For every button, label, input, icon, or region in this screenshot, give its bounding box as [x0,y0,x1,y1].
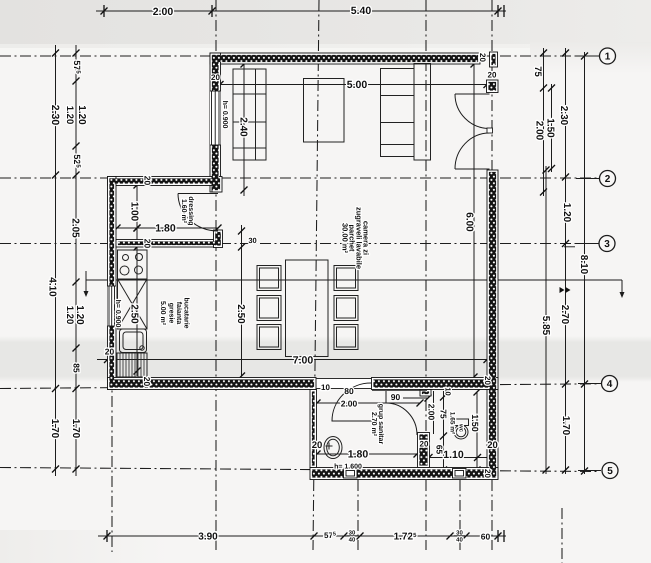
svg-text:20: 20 [143,239,153,249]
svg-text:30: 30 [248,236,256,245]
svg-text:40: 40 [456,537,463,544]
svg-text:10: 10 [444,387,453,395]
svg-text:1.60 m²: 1.60 m² [180,199,187,224]
svg-text:1.725: 1.725 [394,532,417,543]
svg-text:2.00: 2.00 [427,404,437,421]
svg-text:65: 65 [435,445,445,455]
svg-text:h= 0.900: h= 0.900 [114,300,122,328]
svg-text:20: 20 [105,347,115,357]
svg-text:40: 40 [349,537,356,544]
svg-text:2.40: 2.40 [238,117,249,137]
svg-text:7.00: 7.00 [293,355,314,367]
svg-text:2.00: 2.00 [534,121,545,141]
svg-text:1.65 m²: 1.65 m² [449,412,456,435]
svg-text:1.70: 1.70 [70,419,81,439]
svg-text:5: 5 [607,466,613,477]
svg-text:20: 20 [488,71,497,80]
svg-text:grup sanitar: grup sanitar [377,404,385,445]
svg-text:h= 1.600: h= 1.600 [334,463,362,471]
svg-text:8.10: 8.10 [578,255,589,275]
svg-text:5.85: 5.85 [540,316,551,336]
svg-text:dressing: dressing [187,196,195,225]
svg-text:75: 75 [532,66,543,77]
svg-text:525: 525 [72,154,82,168]
svg-text:2.50: 2.50 [129,304,140,324]
svg-text:85: 85 [72,363,82,373]
svg-text:4: 4 [607,379,613,390]
svg-text:575: 575 [324,531,336,540]
svg-text:wc: wc [458,423,464,433]
svg-text:3: 3 [604,239,610,250]
svg-text:20: 20 [478,53,487,62]
svg-text:20: 20 [483,376,492,385]
svg-text:1.70: 1.70 [49,419,60,439]
svg-text:1: 1 [605,52,611,63]
svg-text:1.20: 1.20 [64,106,75,125]
svg-text:1.50: 1.50 [545,118,556,138]
svg-text:30.00 m²: 30.00 m² [341,223,350,254]
svg-text:20: 20 [483,469,492,478]
svg-text:20: 20 [211,73,220,82]
svg-text:10: 10 [321,383,330,392]
svg-text:75: 75 [439,409,449,419]
svg-text:1.80: 1.80 [348,449,369,461]
svg-text:1.20: 1.20 [64,306,75,325]
svg-text:60: 60 [481,532,491,542]
svg-text:20: 20 [143,176,153,186]
svg-text:575: 575 [72,60,82,74]
svg-text:1.50: 1.50 [470,414,480,432]
svg-text:20: 20 [312,440,323,451]
svg-text:5.40: 5.40 [351,5,372,17]
svg-text:1.20: 1.20 [76,105,87,125]
svg-text:2.30: 2.30 [49,105,61,126]
svg-text:5.00 m²: 5.00 m² [159,301,166,326]
svg-text:80: 80 [344,386,354,396]
svg-text:1.10: 1.10 [443,449,464,461]
svg-text:90: 90 [391,392,401,402]
svg-text:2.30: 2.30 [558,106,569,126]
svg-text:2.70 m²: 2.70 m² [370,412,377,437]
svg-text:1.80: 1.80 [155,223,176,235]
svg-text:2: 2 [605,174,611,185]
svg-text:faianta: faianta [175,302,183,325]
svg-text:6.00: 6.00 [464,212,475,232]
svg-text:2.00: 2.00 [341,399,358,409]
svg-text:gresie: gresie [168,303,176,324]
svg-text:1.20: 1.20 [561,203,572,223]
svg-text:2.70: 2.70 [559,305,570,325]
svg-text:1.20: 1.20 [74,305,85,325]
svg-text:20: 20 [420,440,429,449]
svg-text:bucatarie: bucatarie [183,297,191,328]
svg-text:2.50: 2.50 [235,304,246,324]
svg-text:5.00: 5.00 [347,79,368,91]
svg-text:1.00: 1.00 [129,202,140,222]
svg-text:2.05: 2.05 [70,218,81,238]
svg-text:3.90: 3.90 [198,532,218,543]
svg-text:20: 20 [142,377,152,387]
svg-text:20: 20 [487,440,498,451]
svg-text:1.70: 1.70 [560,416,571,436]
svg-text:4.10: 4.10 [47,277,58,297]
svg-text:2.00: 2.00 [153,6,174,18]
svg-text:h= 0.900: h= 0.900 [221,101,229,129]
